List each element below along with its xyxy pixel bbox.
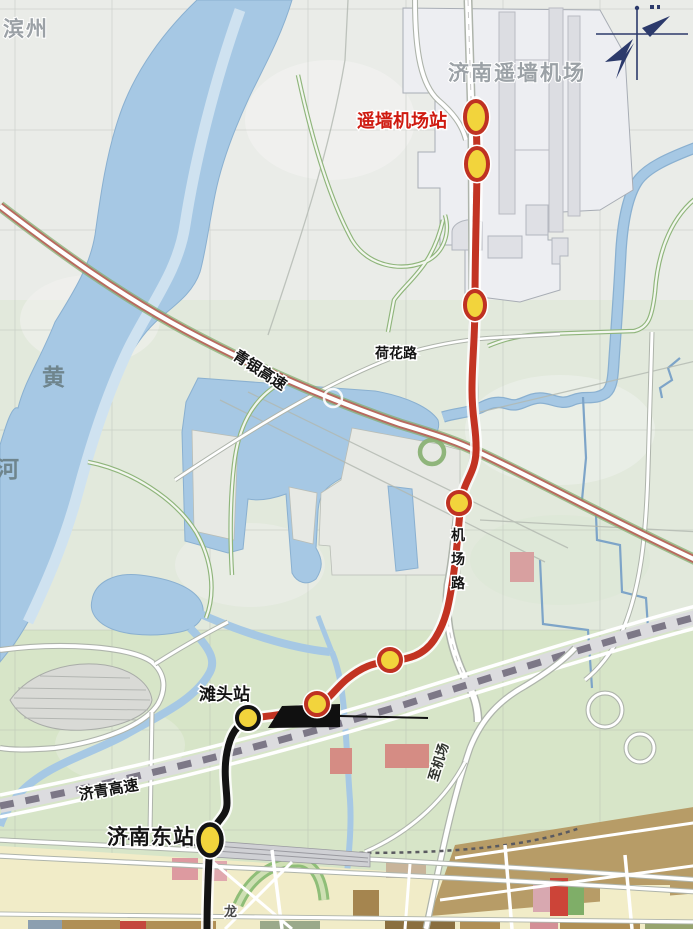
label-binzhou: 滨州 [3, 17, 49, 41]
station-jinan-east [196, 822, 224, 858]
label-jinan-east-station: 济南东站 [107, 825, 195, 849]
station-airport-2 [464, 146, 490, 182]
page-margin [693, 0, 700, 929]
label-tantou-station: 滩头站 [199, 684, 250, 704]
label-jichang-road: 机场路 [451, 527, 466, 591]
label-yellow-river-upper: 黄 [42, 364, 65, 390]
station-4 [446, 490, 472, 516]
label-yellow-river-lower: 河 [0, 456, 19, 482]
lake-peninsula [289, 487, 317, 544]
label-partial-place: 龙 [224, 904, 237, 919]
station-6 [304, 691, 330, 717]
transit-map: 滨州 济南遥墙机场 遥墙机场站 滩头站 济南东站 青银高速 荷花路 机场路 济青… [0, 0, 700, 929]
station-airport-1 [463, 99, 489, 135]
station-3 [463, 289, 487, 321]
map-canvas: 滨州 济南遥墙机场 遥墙机场站 滩头站 济南东站 青银高速 荷花路 机场路 济青… [0, 0, 700, 929]
station-tantou [235, 705, 262, 732]
label-airport-name: 济南遥墙机场 [448, 61, 586, 85]
station-5 [377, 647, 403, 673]
label-hehua-road: 荷花路 [374, 345, 418, 361]
label-airport-station: 遥墙机场站 [357, 110, 447, 131]
